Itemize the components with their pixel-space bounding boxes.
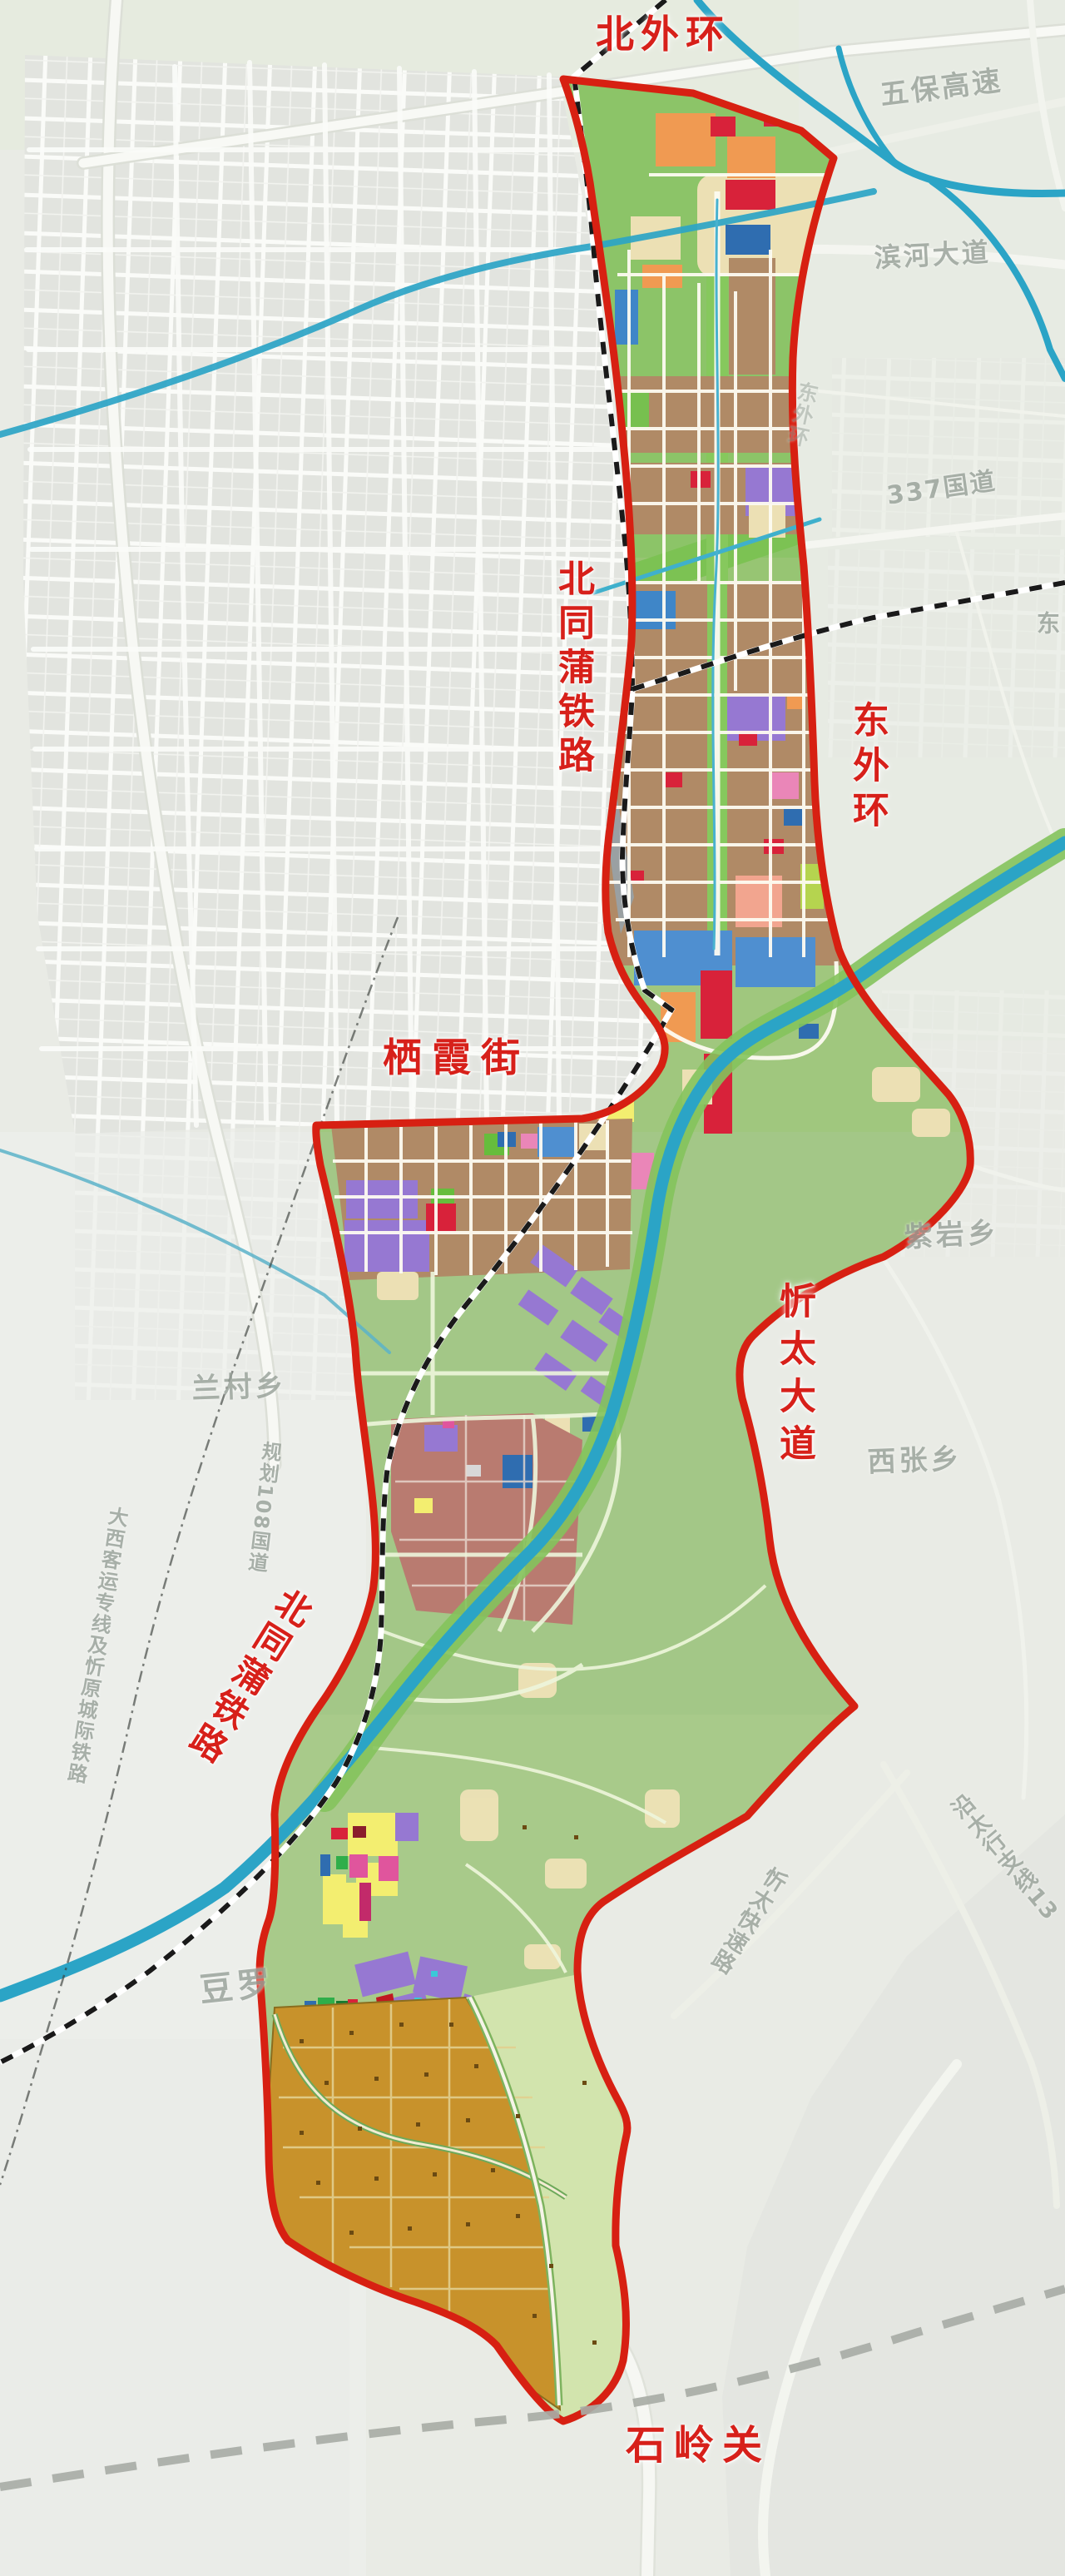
label-xintai-avenue: 忻太大道 [775,1282,812,1472]
label-dong-partial: 东 [1035,611,1058,634]
map-graphics [0,0,1065,2576]
label-xizhang-township: 西张乡 [867,1445,963,1477]
planning-map-canvas: 北外环 北同蒲铁路 东外环 栖霞街 忻太大道 北同蒲铁路 石岭关 五保高速 滨河… [0,0,1065,2576]
label-binhe-avenue: 滨河大道 [874,239,991,271]
label-qixia-street: 栖霞街 [383,1039,530,1078]
label-east-outer-ring: 东外环 [849,701,885,836]
label-ziyan-township: 紫岩乡 [904,1219,1000,1252]
label-lancun-township: 兰村乡 [191,1372,287,1403]
label-douluo: 豆罗 [198,1967,276,2008]
label-north-outer-ring: 北外环 [596,15,731,53]
label-shiling-pass: 石岭关 [626,2425,770,2465]
label-beitongpu-railway-upper: 北同蒲铁路 [554,559,591,780]
